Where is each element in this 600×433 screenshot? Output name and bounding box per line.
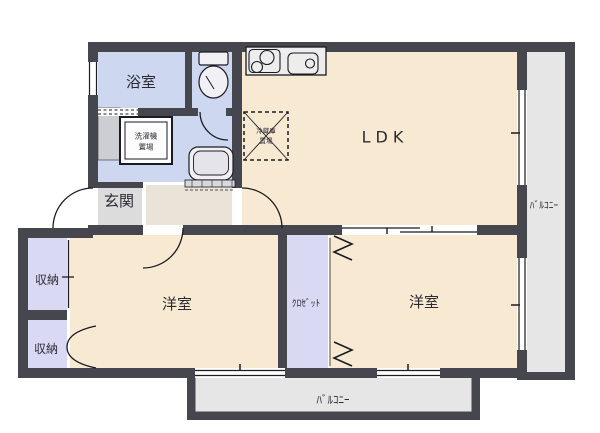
fridge-label-2: 置場	[260, 136, 274, 145]
sliding-door-icon	[342, 225, 477, 235]
bedroom-right-label: 洋室	[409, 293, 439, 311]
kitchen-counter	[246, 47, 326, 75]
stove-icon	[249, 50, 280, 73]
fridge-label-1: 冷蔵庫	[256, 126, 276, 135]
closet-label: ｸﾛｾﾞｯﾄ	[292, 299, 321, 310]
bath-sliding-door-icon	[98, 108, 138, 116]
sink-icon	[288, 53, 318, 74]
balcony-right	[527, 52, 565, 372]
entrance-label: 玄関	[104, 192, 134, 210]
washing-machine-area-icon: 洗濯機 置場	[120, 117, 172, 164]
bath-label: 浴室	[126, 73, 156, 91]
bedroom-left-label: 洋室	[162, 295, 192, 313]
storage-bottom-label: 収納	[34, 342, 58, 356]
toilet-icon	[199, 52, 228, 98]
hall-floor	[146, 185, 232, 225]
washbasin-icon	[185, 147, 235, 190]
washer-label-1: 洗濯機	[135, 131, 158, 141]
washer-label-2: 置場	[139, 142, 154, 152]
storage-top-label: 収納	[35, 273, 59, 287]
balcony-right-label: ﾊﾞﾙｺﾆｰ	[530, 201, 559, 212]
ldk-label: LDK	[362, 128, 409, 147]
room-fills	[28, 52, 565, 420]
floorplan: 洗濯機 置場 冷蔵庫 置場 浴室 LDK 玄関 収納 収納 洋室 洋室 ｸﾛｾﾞ…	[0, 0, 600, 433]
window-icon	[88, 62, 98, 95]
balcony-bottom-label: ﾊﾞﾙｺﾆｰ	[317, 394, 350, 407]
